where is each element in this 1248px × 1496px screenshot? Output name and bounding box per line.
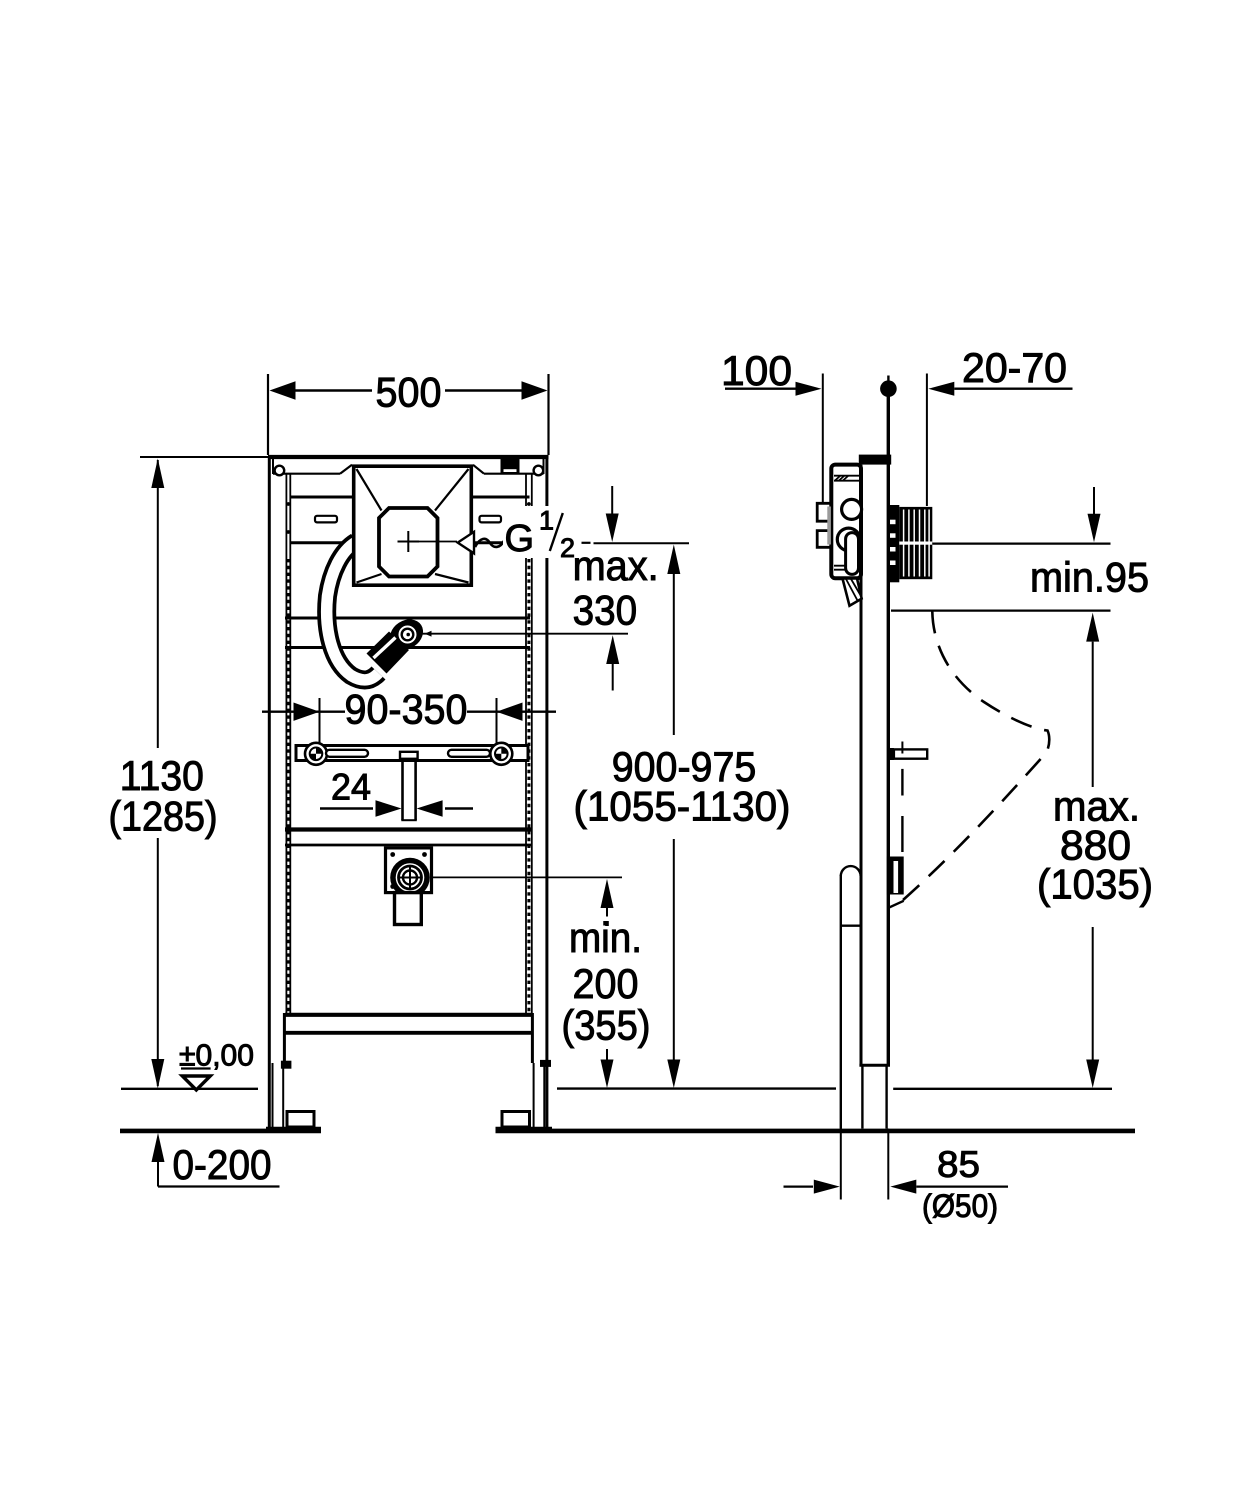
svg-text:(1055-1130): (1055-1130) bbox=[574, 783, 791, 830]
svg-text:500: 500 bbox=[376, 369, 442, 416]
svg-text:min.: min. bbox=[569, 914, 642, 961]
svg-text:max.: max. bbox=[573, 542, 659, 589]
svg-text:(1035): (1035) bbox=[1037, 861, 1153, 908]
svg-text:(1285): (1285) bbox=[109, 793, 218, 840]
svg-text:1: 1 bbox=[539, 506, 554, 536]
svg-text:0-200: 0-200 bbox=[173, 1141, 272, 1188]
svg-text:200: 200 bbox=[573, 960, 639, 1007]
svg-text:G: G bbox=[505, 518, 535, 560]
svg-text:20-70: 20-70 bbox=[962, 344, 1067, 391]
svg-text:(355): (355) bbox=[562, 1002, 651, 1049]
svg-text:(Ø50): (Ø50) bbox=[922, 1188, 998, 1224]
svg-text:2: 2 bbox=[560, 533, 575, 563]
svg-text:min.95: min.95 bbox=[1030, 554, 1149, 601]
svg-text:24: 24 bbox=[331, 767, 371, 808]
svg-text:90-350: 90-350 bbox=[345, 686, 468, 733]
svg-text:85: 85 bbox=[937, 1144, 980, 1185]
svg-text:100: 100 bbox=[721, 347, 792, 394]
svg-text:330: 330 bbox=[573, 587, 638, 634]
